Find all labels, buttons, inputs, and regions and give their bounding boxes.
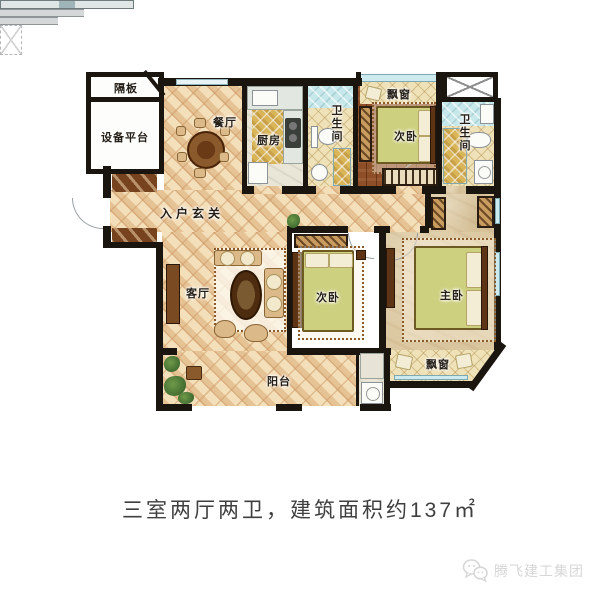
bathroom2-side-window xyxy=(495,198,500,224)
shower-area xyxy=(333,148,351,186)
fridge xyxy=(248,162,268,184)
kitchen-door-gap xyxy=(254,186,282,194)
toilet xyxy=(311,126,318,148)
wall xyxy=(103,242,163,248)
wall xyxy=(379,232,386,352)
pillow xyxy=(305,253,329,268)
room-label-partition: 隔板 xyxy=(114,80,138,96)
entry-mat xyxy=(112,174,157,192)
room-label-entry-hall: 入户玄关 xyxy=(160,205,224,222)
pillow xyxy=(466,290,482,326)
brand-watermark: 腾飞建工集团 xyxy=(462,558,584,583)
tv-cabinet xyxy=(386,248,395,308)
wall xyxy=(276,404,302,411)
room-label-living: 客厅 xyxy=(186,285,210,301)
entry-door-arc xyxy=(72,198,103,229)
bedroom1-baywindow-glass xyxy=(360,74,438,82)
bedroom1-door-gap xyxy=(396,186,422,194)
bathroom-sink xyxy=(480,104,494,124)
wall xyxy=(360,404,391,411)
headboard xyxy=(430,106,436,164)
wall xyxy=(389,381,473,388)
room-label-balcony: 阳台 xyxy=(267,373,291,389)
washing-machine-drum xyxy=(366,387,380,401)
wall xyxy=(163,348,177,355)
bathroom2-door-gap xyxy=(446,186,466,194)
wardrobe xyxy=(431,197,446,230)
coffee-table xyxy=(230,270,262,320)
balcony-railing-window xyxy=(0,9,84,17)
kitchen-sink xyxy=(252,90,278,106)
balcony-railing-window xyxy=(0,17,58,25)
baywindow-cushion xyxy=(455,353,473,370)
dining-chair xyxy=(194,168,206,178)
room-label-bedroom2: 次卧 xyxy=(316,289,340,305)
wall xyxy=(353,84,358,188)
wardrobe xyxy=(359,106,372,162)
room-label-kitchen: 厨房 xyxy=(257,132,281,148)
balcony-sliding-door xyxy=(0,0,134,9)
dining-chair xyxy=(194,118,206,128)
wardrobe-hangers xyxy=(382,168,438,186)
wall xyxy=(356,351,359,406)
master-baywindow-glass xyxy=(394,375,468,380)
wall xyxy=(356,72,361,86)
washing-machine-drum xyxy=(478,166,491,179)
wall xyxy=(103,166,111,198)
dining-table xyxy=(187,131,225,169)
armchair xyxy=(214,320,236,338)
sofa-cushion xyxy=(220,251,235,266)
stove-burner xyxy=(289,122,297,130)
baywindow-cushion xyxy=(395,353,414,370)
armchair xyxy=(244,324,268,342)
sofa-cushion xyxy=(240,251,255,266)
sofa-cushion xyxy=(266,296,282,312)
bathroom-sink xyxy=(311,164,328,181)
stove-burner xyxy=(289,134,297,142)
dining-chair xyxy=(176,126,186,136)
room-label-equipment-platform: 设备平台 xyxy=(101,129,149,145)
tv-cabinet xyxy=(166,264,180,324)
dining-chair xyxy=(177,152,187,162)
laundry-counter xyxy=(360,353,384,379)
nightstand xyxy=(356,250,366,260)
room-label-baywindow-top: 飘窗 xyxy=(387,86,411,102)
brand-watermark-text: 腾飞建工集团 xyxy=(494,561,584,581)
bathroom1-door-gap xyxy=(316,186,340,194)
room-label-bathroom1: 卫生间 xyxy=(328,105,344,144)
room-label-bathroom2: 卫生间 xyxy=(456,114,472,153)
room-label-master: 主卧 xyxy=(440,287,464,303)
utility-shaft xyxy=(442,72,498,102)
pillow xyxy=(329,253,353,268)
pillow xyxy=(466,252,482,288)
dining-window xyxy=(176,79,228,85)
balcony-table xyxy=(186,366,202,380)
room-label-baywindow-bottom: 飘窗 xyxy=(426,356,450,372)
dining-chair xyxy=(219,152,229,162)
headboard xyxy=(481,246,488,330)
wall xyxy=(156,404,192,411)
chat-bubbles-icon xyxy=(462,558,489,583)
room-label-bedroom1: 次卧 xyxy=(394,128,418,144)
plan-caption: 三室两厅两卫，建筑面积约137㎡ xyxy=(0,494,600,524)
room-label-dining: 餐厅 xyxy=(213,114,237,130)
ac-platform-outline xyxy=(0,25,22,55)
sofa-cushion xyxy=(266,274,282,290)
wardrobe xyxy=(477,196,494,228)
wall xyxy=(156,242,163,411)
wall xyxy=(303,84,308,188)
